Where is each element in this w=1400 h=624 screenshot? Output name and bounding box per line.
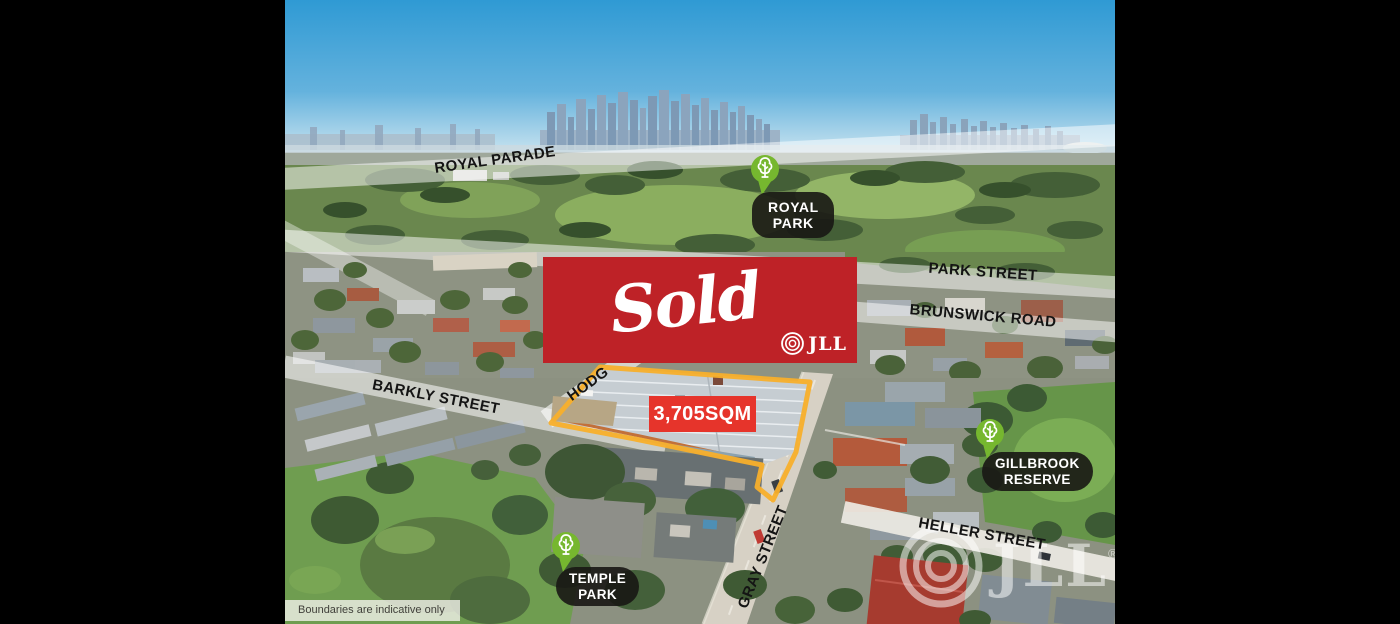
- park-label-text: RESERVE: [995, 472, 1080, 488]
- boundaries-note: Boundaries are indicative only: [285, 600, 460, 621]
- registered-mark: ®: [1108, 546, 1115, 561]
- park-label: TEMPLE PARK: [556, 567, 639, 606]
- aerial-photo: ROYAL PARADE PARK STREET BRUNSWICK ROAD …: [285, 0, 1115, 624]
- sold-text: Sold: [607, 258, 764, 348]
- park-label-text: ROYAL PARK: [768, 199, 818, 231]
- boundaries-note-text: Boundaries are indicative only: [298, 604, 445, 616]
- jll-logo: JLL: [780, 331, 847, 356]
- marketing-image: ROYAL PARADE PARK STREET BRUNSWICK ROAD …: [0, 0, 1400, 624]
- sold-banner: Sold JLL: [543, 257, 857, 363]
- park-label: ROYAL PARK: [752, 192, 834, 238]
- park-label-text: GILLBROOK: [995, 456, 1080, 472]
- park-label: GILLBROOK RESERVE: [982, 452, 1093, 491]
- park-label-text: PARK: [569, 587, 626, 603]
- letterbox-left: [0, 0, 285, 624]
- area-badge-text: 3,705SQM: [653, 403, 751, 426]
- jll-logo-icon: [780, 331, 805, 356]
- jll-logo-text: JLL: [808, 333, 847, 355]
- area-badge: 3,705SQM: [649, 396, 756, 432]
- letterbox-right: [1115, 0, 1400, 624]
- park-label-text: TEMPLE: [569, 571, 626, 587]
